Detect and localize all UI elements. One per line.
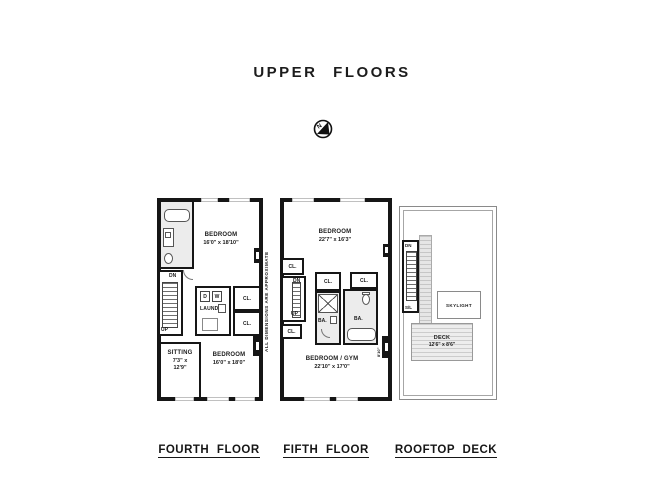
- stair-sl-label: S/L: [405, 305, 412, 310]
- sink: [165, 232, 171, 238]
- wall: [199, 342, 201, 398]
- roof-stair-bulkhead: DN S/L: [402, 240, 419, 313]
- closet: CL.: [283, 324, 302, 339]
- window: [336, 397, 358, 401]
- skylight-label: SKYLIGHT: [446, 303, 472, 308]
- north-arrow-icon: N: [312, 118, 334, 140]
- door-swing-arc: [183, 270, 193, 280]
- stair-dn-label: DN: [293, 278, 300, 284]
- stair-up-label: UP: [161, 327, 168, 333]
- room-sitting: SITTING 7'3" x 12'9": [163, 350, 197, 372]
- dimensions-note: ALL DIMENSIONS ARE APPROXIMATE: [264, 252, 269, 352]
- closet-label: CL.: [288, 264, 296, 270]
- toilet: [362, 294, 370, 305]
- room-bedroom-top: BEDROOM 22'7" x 16'3": [298, 229, 372, 244]
- closet: CL.: [283, 258, 304, 275]
- room-dims: 16'0" x 18'10": [187, 240, 255, 247]
- stair-dn-label: DN: [405, 243, 412, 248]
- room-name: SITTING: [163, 350, 197, 358]
- bay-dimension-label: 8'10": [376, 337, 381, 357]
- stair-dn-label: DN: [169, 273, 176, 279]
- wall: [161, 342, 201, 344]
- laundry-room: D W LAUND.: [195, 286, 231, 336]
- chimney-bump: [383, 244, 388, 257]
- caption-text: FIFTH FLOOR: [283, 444, 369, 458]
- fourth-floor-plan: BEDROOM 16'0" x 18'10" DN UP D W LAUND. …: [157, 198, 263, 401]
- chimney-bump: [382, 336, 388, 358]
- shower: [318, 294, 338, 313]
- deck: DECK 12'6" x 8'6": [411, 323, 473, 361]
- room-dims: 7'3" x: [163, 358, 197, 365]
- stairs: [162, 282, 178, 328]
- room-name: BEDROOM: [298, 229, 372, 237]
- fifth-stairwell: DN UP: [283, 276, 306, 322]
- window: [292, 198, 314, 202]
- chimney-bump: [254, 248, 259, 263]
- washer-box: W: [212, 291, 222, 302]
- fireplace-notch: [256, 252, 259, 259]
- bathtub: [347, 328, 376, 341]
- closet-label: CL.: [243, 296, 251, 302]
- room-dims: 12'9": [163, 365, 197, 372]
- laundry-sink: [218, 304, 226, 313]
- laundry-counter: [202, 318, 218, 331]
- window: [229, 198, 250, 202]
- room-name: BEDROOM: [187, 232, 255, 240]
- fifth-floor-plan: BEDROOM 22'7" x 16'3" CL. DN UP CL. CL. …: [280, 198, 392, 401]
- stairs: [406, 251, 417, 301]
- room-name: BEDROOM / GYM: [292, 356, 372, 364]
- closet: CL.: [233, 286, 259, 311]
- closet-label: CL.: [324, 279, 332, 285]
- bathtub: [164, 209, 190, 222]
- closet: CL.: [233, 311, 259, 336]
- fireplace-notch: [385, 343, 388, 351]
- room-dims: 12'6" x 8'6": [429, 342, 456, 349]
- window: [207, 397, 229, 401]
- fifth-bath-left: BA.: [315, 291, 341, 345]
- window: [235, 397, 255, 401]
- closet-label: CL.: [287, 329, 295, 335]
- dryer-box: D: [200, 291, 210, 302]
- room-name: BEDROOM: [201, 352, 257, 360]
- fireplace-notch: [385, 247, 388, 253]
- closet: CL.: [315, 272, 341, 291]
- fourth-floor-caption: FOURTH FLOOR: [153, 444, 265, 458]
- rooftop-plan: DN S/L SKYLIGHT DECK 12'6" x 8'6": [399, 206, 497, 400]
- skylight: SKYLIGHT: [437, 291, 481, 319]
- chimney-bump: [253, 336, 259, 356]
- door-swing-arc: [321, 329, 330, 338]
- closet-label: CL.: [360, 278, 368, 284]
- sink: [330, 316, 337, 324]
- room-dims: 16'0" x 18'0": [201, 360, 257, 367]
- closet-label: CL.: [243, 321, 251, 327]
- window: [304, 397, 330, 401]
- window: [201, 198, 218, 202]
- fireplace-notch: [256, 342, 259, 350]
- page-title: UPPER FLOORS: [164, 64, 500, 81]
- room-name: DECK: [429, 335, 456, 342]
- bath-label: BA.: [354, 316, 363, 322]
- room-bedroom-top: BEDROOM 16'0" x 18'10": [187, 232, 255, 247]
- fourth-stairwell: DN UP: [160, 270, 183, 336]
- room-bedroom-gym: BEDROOM / GYM 22'10" x 17'0": [292, 356, 372, 371]
- bulkhead-roof-strip: [419, 235, 432, 334]
- floorplan-page: UPPER FLOORS N BEDROOM 16'0" x 18'10": [0, 0, 656, 482]
- stair-up-label: UP: [291, 311, 298, 317]
- caption-text: ROOFTOP DECK: [395, 444, 497, 458]
- fifth-bath-right: BA.: [343, 289, 378, 345]
- bath-label: BA.: [318, 318, 327, 324]
- rooftop-deck-caption: ROOFTOP DECK: [390, 444, 502, 458]
- fifth-floor-caption: FIFTH FLOOR: [270, 444, 382, 458]
- room-dims: 22'7" x 16'3": [298, 237, 372, 244]
- room-bedroom-bottom: BEDROOM 16'0" x 18'0": [201, 352, 257, 367]
- closet: CL.: [350, 272, 378, 289]
- toilet-tank: [362, 292, 370, 295]
- window: [340, 198, 365, 202]
- deck-label: DECK 12'6" x 8'6": [429, 335, 456, 349]
- toilet: [164, 253, 173, 264]
- window: [175, 397, 194, 401]
- room-dims: 22'10" x 17'0": [292, 364, 372, 371]
- caption-text: FOURTH FLOOR: [158, 444, 259, 458]
